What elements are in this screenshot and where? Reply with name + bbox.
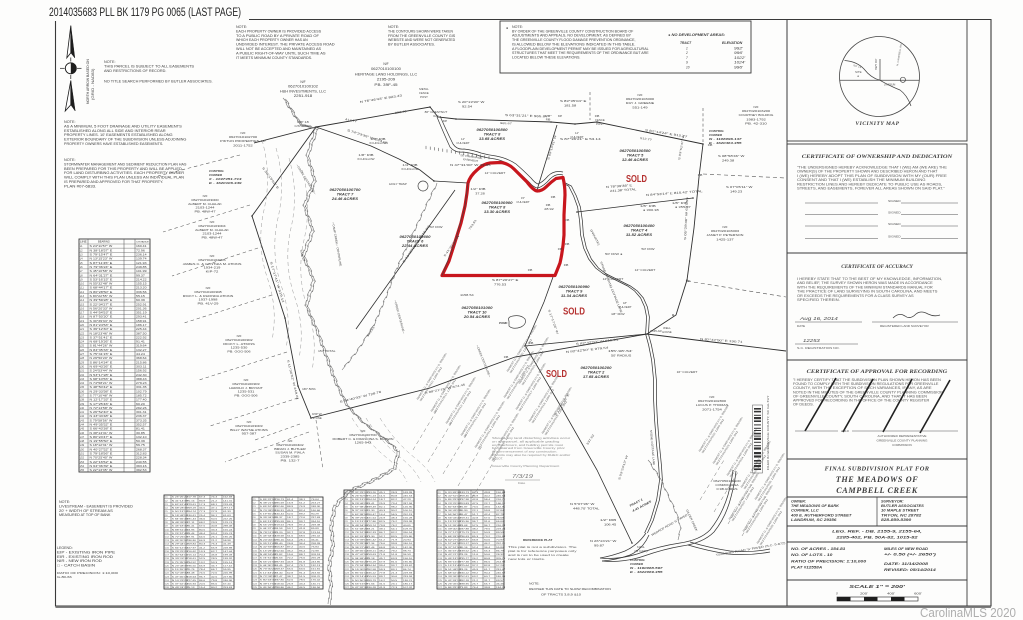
svg-text:89.18: 89.18: [367, 558, 376, 560]
svg-text:KIP: KIP: [558, 114, 563, 118]
svg-text:∼CREEK CENTERLINE∼: ∼CREEK CENTERLINE∼: [475, 344, 492, 379]
svg-text:RIB: RIB: [504, 355, 509, 359]
svg-text:THE CONTOURS SHOWN WERE TAKEN: THE CONTOURS SHOWN WERE TAKEN: [388, 29, 454, 33]
svg-text:N 19°55'50" E: N 19°55'50" E: [90, 440, 113, 443]
svg-text:L29: L29: [80, 361, 85, 364]
svg-text:147.44: 147.44: [223, 551, 233, 553]
svg-text:DATE: DATE: [797, 324, 805, 328]
svg-text:L28: L28: [80, 357, 85, 360]
svg-text:S 37°51'41" E: S 37°51'41" E: [90, 336, 113, 339]
svg-text:IS PREPARED AND APPROVED FOR T: IS PREPARED AND APPROVED FOR THAT PROPER…: [64, 180, 164, 184]
svg-text:190.26: 190.26: [223, 536, 233, 538]
svg-text:S 26°52'40" E: S 26°52'40" E: [90, 411, 113, 414]
svg-text:180.95: 180.95: [496, 576, 506, 578]
svg-text:127.97: 127.97: [187, 547, 197, 549]
svg-text:HOLY TRAP: HOLY TRAP: [389, 182, 407, 186]
svg-text:209.37: 209.37: [460, 539, 470, 541]
svg-text:245.22: 245.22: [367, 572, 377, 574]
svg-text:67.47: 67.47: [275, 576, 284, 578]
svg-text:155.24: 155.24: [223, 529, 233, 531]
svg-text:S 22°34'27" E: S 22°34'27" E: [90, 303, 113, 306]
svg-text:0.98 ACRES: 0.98 ACRES: [717, 487, 738, 491]
svg-text:THE MEADOWS OF: THE MEADOWS OF: [836, 475, 919, 484]
svg-text:236.14: 236.14: [136, 254, 147, 257]
svg-text:20' + WIDTH OF STREAM AS: 20' + WIDTH OF STREAM AS: [59, 509, 113, 513]
svg-text:CORNER, LLC: CORNER, LLC: [791, 509, 819, 513]
svg-text:50′ R/W ●: 50′ R/W ●: [605, 252, 623, 256]
svg-text:159.74: 159.74: [367, 525, 377, 527]
svg-text:210.23: 210.23: [496, 525, 506, 527]
svg-text:271.23: 271.23: [367, 495, 377, 497]
svg-text:L43: L43: [80, 419, 85, 422]
svg-text:RIB: RIB: [595, 114, 600, 118]
svg-text:186.17: 186.17: [136, 324, 147, 327]
svg-text:222.92: 222.92: [136, 336, 147, 339]
svg-text:L12: L12: [80, 291, 85, 294]
svg-text:209.84: 209.84: [187, 544, 197, 546]
svg-text:LIVESTREAM - EASEMENT IS PROVI: LIVESTREAM - EASEMENT IS PROVIDED: [59, 504, 134, 508]
svg-text:279.23: 279.23: [136, 382, 147, 385]
svg-text:140.44: 140.44: [275, 514, 285, 516]
svg-text:246.80: 246.80: [187, 540, 197, 542]
svg-text:177.40: 177.40: [136, 399, 147, 402]
svg-text:260.54: 260.54: [403, 532, 413, 534]
svg-text:245.53: 245.53: [403, 495, 413, 497]
svg-text:18" R/W: 18" R/W: [611, 312, 625, 316]
svg-text:L1: L1: [80, 245, 83, 248]
svg-text:N 53°17'28" E: N 53°17'28" E: [90, 374, 113, 377]
svg-text:OF TRACTS 3,8,9 &10: OF TRACTS 3,8,9 &10: [541, 593, 581, 597]
svg-text:E - 1622069.455: E - 1622069.455: [630, 570, 663, 574]
svg-text:288.86: 288.86: [275, 587, 285, 589]
svg-text:L27: L27: [80, 353, 85, 356]
svg-text:L40: L40: [80, 407, 85, 410]
svg-text:10: 10: [686, 65, 690, 69]
svg-text:24.46 ACRES: 24.46 ACRES: [331, 197, 359, 201]
svg-text:181.43: 181.43: [187, 518, 197, 520]
svg-text:EIR - EXISTING IRON ROD: EIR - EXISTING IRON ROD: [57, 555, 114, 559]
svg-text:S 77°10'48" W: S 77°10'48" W: [90, 394, 114, 397]
svg-text:2251-918: 2251-918: [294, 94, 313, 98]
svg-text:N 87°50'20" E: N 87°50'20" E: [90, 316, 113, 319]
svg-text:753.81: 753.81: [468, 218, 478, 230]
svg-text:236.37: 236.37: [136, 415, 147, 418]
svg-text:71.66: 71.66: [367, 583, 376, 585]
svg-text:WILL COMPLY WITH THIS PLAN UNL: WILL COMPLY WITH THIS PLAN UNLESS AN IND…: [64, 176, 185, 180]
svg-text:ROBERT G. & GWENDOLYN S. BROWN: ROBERT G. & GWENDOLYN S. BROWN: [517, 336, 549, 385]
svg-text:196.50: 196.50: [187, 565, 197, 567]
svg-text:NOTE:: NOTE:: [59, 500, 70, 504]
svg-text:50′ RADIUS: 50′ RADIUS: [611, 354, 631, 358]
svg-text:255.29: 255.29: [311, 558, 321, 560]
svg-text:1/8": 1/8": [544, 114, 552, 118]
svg-text:141.31: 141.31: [223, 500, 233, 502]
svg-text:IN HOLLOW: IN HOLLOW: [358, 157, 376, 161]
svg-text:156.92: 156.92: [136, 370, 147, 373]
svg-text:216.73: 216.73: [275, 499, 285, 501]
svg-text:NOTE:: NOTE:: [64, 158, 76, 162]
svg-text:78.69: 78.69: [496, 517, 505, 519]
svg-text:L24: L24: [80, 341, 85, 344]
svg-text:237.80: 237.80: [275, 580, 285, 582]
svg-text:90.90: 90.90: [460, 510, 469, 512]
svg-text:270.29: 270.29: [367, 561, 377, 563]
svg-text:S 87°20′27" E: S 87°20′27" E: [492, 278, 518, 282]
svg-text:H&H INVESTMENTS, LLC: H&H INVESTMENTS, LLC: [280, 89, 327, 93]
svg-text:N 5°07′36" W: N 5°07′36" W: [570, 502, 595, 506]
svg-text:L16: L16: [80, 307, 85, 310]
svg-text:965.67: 965.67: [500, 121, 513, 125]
svg-text:THIS PARCEL IS SUBJECT TO ALL: THIS PARCEL IS SUBJECT TO ALL EASEMENTS: [104, 65, 195, 69]
svg-text:● 300.38: ● 300.38: [643, 208, 659, 212]
svg-text:28.32: 28.32: [496, 554, 505, 556]
svg-text:Aug 16, 2014: Aug 16, 2014: [799, 316, 839, 321]
svg-text:S 03°51′47" W: S 03°51′47" W: [677, 134, 685, 160]
svg-text:L13: L13: [80, 295, 85, 298]
svg-text:COMMISSION: COMMISSION: [892, 443, 912, 447]
svg-text:LANDRUM: LANDRUM: [884, 84, 895, 87]
svg-text:C/S CREEK: C/S CREEK: [295, 124, 312, 128]
svg-text:★: ★: [857, 74, 860, 78]
svg-text:NO TITLE SEARCH PERFORMED BY B: NO TITLE SEARCH PERFORMED BY BUTLER ASSO…: [104, 80, 213, 84]
svg-text:160.66: 160.66: [311, 510, 321, 512]
svg-text:STONE COTTAGE LANE: STONE COTTAGE LANE: [649, 430, 656, 466]
svg-text:149.23: 149.23: [730, 190, 743, 194]
svg-text:N 29°33'58" E: N 29°33'58" E: [90, 390, 113, 393]
svg-text:(GRID - NAD83): (GRID - NAD83): [91, 69, 95, 100]
svg-text:ESTABLISHED ALONG ALL SIDE AND: ESTABLISHED ALONG ALL SIDE AND INTERIOR …: [64, 129, 166, 133]
svg-text:227.80: 227.80: [223, 576, 233, 578]
svg-text:POPLAR: POPLAR: [650, 329, 661, 333]
svg-text:OWNER:: OWNER:: [791, 500, 807, 504]
svg-text:258.99: 258.99: [311, 543, 321, 545]
svg-text:N 64°36'39" E: N 64°36'39" E: [90, 465, 113, 468]
svg-text:287.93: 287.93: [275, 561, 285, 563]
svg-text:117.42: 117.42: [223, 565, 233, 567]
svg-text:61.30: 61.30: [367, 510, 376, 512]
svg-text:S 17°17′26" W: S 17°17′26" W: [547, 309, 560, 335]
svg-text:L52: L52: [80, 457, 85, 460]
svg-text:UNDIVIDED INTEREST. THE PRIVA: UNDIVIDED INTEREST. THE PRIVATE ACCESS R…: [236, 43, 335, 47]
svg-text:0627050100200: 0627050100200: [581, 366, 612, 370]
svg-text:203.83: 203.83: [460, 503, 470, 505]
svg-text:240.28: 240.28: [367, 587, 377, 589]
svg-text:NOTE:: NOTE:: [529, 582, 540, 586]
svg-text:387.50: 387.50: [136, 332, 147, 335]
svg-text:70.97: 70.97: [496, 539, 505, 541]
svg-text:55.80: 55.80: [496, 547, 505, 549]
svg-text:N 64°31'27" E: N 64°31'27" E: [90, 274, 113, 277]
svg-text:92.54: 92.54: [462, 105, 473, 109]
svg-text:S 08°58′46" W: S 08°58′46" W: [718, 154, 745, 158]
svg-text:187.50%: 187.50%: [302, 387, 316, 391]
svg-text:N 56°20'33" W: N 56°20'33" W: [90, 307, 114, 310]
svg-text:L3: L3: [80, 254, 83, 257]
svg-text:∼CREEK CENTERLINE∼: ∼CREEK CENTERLINE∼: [393, 299, 406, 335]
svg-text:SURVEYOR:: SURVEYOR:: [881, 500, 905, 504]
svg-text:BY BUTLER ASSOCIATES.: BY BUTLER ASSOCIATES.: [388, 43, 435, 47]
svg-text:PROPERTY OWNERS HAVE ESTABLISH: PROPERTY OWNERS HAVE ESTABLISHED EASEMEN…: [64, 142, 163, 146]
svg-text:1425-137: 1425-137: [716, 237, 734, 241]
svg-text:L17: L17: [80, 312, 85, 315]
svg-text:7/3/19: 7/3/19: [512, 474, 533, 480]
svg-text:158.91: 158.91: [136, 320, 147, 323]
svg-text:81.41: 81.41: [136, 428, 146, 431]
svg-text:WEBSITE AND WERE NOT GENERATED: WEBSITE AND WERE NOT GENERATED: [388, 38, 456, 42]
svg-text:373.35: 373.35: [136, 419, 147, 422]
svg-text:RIB: RIB: [698, 173, 703, 177]
svg-text:17.65 ACRES: 17.65 ACRES: [583, 375, 610, 379]
svg-text:S 81°44'26" W: S 81°44'26" W: [90, 345, 114, 348]
svg-text:RIB: RIB: [528, 268, 533, 272]
svg-text:L34: L34: [80, 382, 85, 385]
svg-text:0627010100102: 0627010100102: [288, 85, 318, 89]
svg-text:SIGNED: SIGNED: [888, 211, 901, 215]
svg-text:0627050101000: 0627050101000: [462, 306, 493, 310]
svg-text:THE MEADOWS OF BARK: THE MEADOWS OF BARK: [791, 504, 839, 508]
svg-text:● 355.07: ● 355.07: [675, 205, 691, 209]
svg-text:301.31: 301.31: [136, 411, 147, 414]
svg-text:IT MEETS MINIMUM COUNTY STANDA: IT MEETS MINIMUM COUNTY STANDARDS.: [236, 56, 312, 60]
svg-text:2: 2: [685, 51, 688, 55]
svg-text:S 68°44'17" E: S 68°44'17" E: [90, 287, 113, 290]
svg-text:262.18: 262.18: [460, 580, 470, 582]
svg-text:169.99: 169.99: [403, 492, 413, 494]
svg-text:∼CAMP CREEK∼ CENTERLINE: ∼CAMP CREEK∼ CENTERLINE: [331, 221, 343, 266]
svg-text:105.87: 105.87: [275, 547, 285, 549]
svg-text:TRACT 9: TRACT 9: [566, 290, 583, 294]
svg-text:12253: 12253: [803, 338, 820, 344]
svg-text:encroachment, and building per: encroachment, and building permits must: [492, 443, 563, 447]
svg-text:CERTIFICATE OF ACCURACY: CERTIFICATE OF ACCURACY: [841, 264, 913, 270]
svg-text:N 79°36'24" E: N 79°36'24" E: [90, 266, 113, 269]
svg-text:264.10: 264.10: [311, 521, 321, 523]
svg-text:87.79: 87.79: [496, 514, 505, 516]
svg-text:225.64: 225.64: [460, 565, 470, 567]
svg-text:996': 996': [734, 65, 744, 69]
svg-text:STREETS, AND EASEMENTS, FOREVE: STREETS, AND EASEMENTS, FOREVER ALL AREA…: [797, 187, 946, 191]
svg-text:14": 14": [575, 131, 579, 135]
svg-text:412.77: 412.77: [345, 117, 358, 123]
svg-text:L15: L15: [80, 303, 85, 306]
svg-text:127.65: 127.65: [187, 580, 197, 582]
svg-text:2010: 2010: [841, 429, 849, 433]
svg-text:PB. 42-310: PB. 42-310: [745, 121, 767, 125]
svg-text:213.20: 213.20: [136, 287, 147, 290]
svg-text:N 12°17'33" E: N 12°17'33" E: [90, 399, 113, 402]
svg-text:S 80°24'47" E: S 80°24'47" E: [90, 436, 113, 439]
svg-text:0627050100900: 0627050100900: [482, 201, 513, 205]
svg-text:252.21: 252.21: [496, 543, 506, 545]
svg-text:LOCATED BELOW THESE ELEVATIONS: LOCATED BELOW THESE ELEVATIONS.: [512, 55, 581, 59]
svg-text:132.91: 132.91: [496, 506, 506, 508]
svg-text:N 76°46′43" E 823.43: N 76°46′43" E 823.43: [360, 93, 403, 104]
svg-text:252.91: 252.91: [136, 303, 147, 306]
svg-text:140.61: 140.61: [187, 515, 197, 517]
svg-text:S 79°15'47" E: S 79°15'47" E: [90, 254, 113, 257]
svg-text:PB. 48W-47: PB. 48W-47: [195, 210, 216, 214]
svg-text:269.29: 269.29: [187, 508, 197, 510]
svg-text:(R CAP): (R CAP): [634, 549, 647, 553]
svg-text:S 82°42′50" W 915.91: S 82°42′50" W 915.91: [576, 338, 619, 346]
svg-text:66.47: 66.47: [460, 514, 469, 516]
svg-text:237.98: 237.98: [460, 499, 470, 501]
svg-text:296.16: 296.16: [275, 539, 285, 541]
svg-text:40.65: 40.65: [403, 525, 412, 527]
svg-text:NOTE:: NOTE:: [236, 25, 247, 29]
svg-text:L11: L11: [80, 287, 85, 290]
svg-text:L50: L50: [80, 448, 85, 451]
svg-text:285.69: 285.69: [275, 502, 285, 504]
svg-text:IN HOLLOW: IN HOLLOW: [370, 141, 388, 145]
svg-text:75.84: 75.84: [311, 547, 320, 549]
svg-text:S 18°12'31" W: S 18°12'31" W: [90, 444, 114, 447]
svg-text:136.21: 136.21: [403, 580, 413, 582]
svg-text:56.75: 56.75: [136, 444, 146, 447]
svg-text:CULVERT: CULVERT: [456, 141, 470, 145]
svg-text:69.57: 69.57: [496, 580, 505, 582]
svg-text:RIB: RIB: [565, 218, 570, 222]
svg-text:WELL: WELL: [663, 326, 671, 330]
svg-text:67.40: 67.40: [223, 583, 232, 585]
svg-text:S 44°54'53" E: S 44°54'53" E: [90, 312, 113, 315]
svg-text:S 66°43'38" E: S 66°43'38" E: [90, 428, 113, 431]
svg-text:LEGEND:: LEGEND:: [57, 546, 73, 550]
svg-text:254.92: 254.92: [496, 561, 506, 563]
svg-text:N 29°50'20" W: N 29°50'20" W: [90, 357, 114, 360]
svg-text:RIP 18: RIP 18: [297, 120, 309, 124]
svg-text:98.40: 98.40: [275, 543, 284, 545]
svg-text:34.59: 34.59: [275, 528, 284, 530]
svg-text:209.18: 209.18: [311, 554, 321, 556]
svg-text:RIB: RIB: [708, 143, 713, 147]
svg-text:157 TOTAL: 157 TOTAL: [318, 349, 336, 353]
svg-text:N 84°53′14" E 815.42′ TOTAL: N 84°53′14" E 815.42′ TOTAL: [646, 189, 704, 197]
svg-text:229.93: 229.93: [403, 572, 413, 574]
svg-text:252.19: 252.19: [403, 514, 413, 516]
svg-text:98.37: 98.37: [275, 517, 284, 519]
svg-text:S 22°13'35" W: S 22°13'35" W: [90, 469, 114, 472]
svg-text:155.14: 155.14: [223, 562, 233, 564]
svg-text:S 24°53'44" W: S 24°53'44" W: [90, 370, 114, 373]
svg-text:109.70: 109.70: [403, 528, 413, 530]
svg-text:243.85: 243.85: [311, 561, 321, 563]
svg-text:L32: L32: [80, 374, 85, 377]
svg-text:331.35: 331.35: [136, 386, 147, 389]
svg-text:1/8" RIB: 1/8" RIB: [358, 153, 373, 157]
svg-text:Permits may also be required b: Permits may also be required by DHEC and…: [492, 453, 570, 457]
svg-text:MEASURED AT TOP OF BANK: MEASURED AT TOP OF BANK: [59, 513, 111, 517]
svg-text:L10: L10: [80, 283, 85, 286]
svg-text:957-387: 957-387: [242, 432, 257, 436]
svg-text:0627050100700: 0627050100700: [330, 188, 361, 192]
svg-text:N. CAMPBELL RD: N. CAMPBELL RD: [896, 43, 903, 66]
svg-text:2014035683 PLL BK 1179 PG 006: 2014035683 PLL BK 1179 PG 0065 (LAST PAG…: [49, 7, 241, 19]
svg-text:353.81: 353.81: [366, 325, 376, 337]
svg-text:336.56: 336.56: [136, 291, 147, 294]
svg-text:1: 1: [686, 47, 688, 51]
svg-text:MILES OF NEW ROAD: MILES OF NEW ROAD: [884, 547, 928, 551]
svg-text:297.17: 297.17: [223, 508, 233, 510]
svg-text:RIB: RIB: [546, 118, 551, 122]
svg-text:448.70′ TOTAL: 448.70′ TOTAL: [573, 507, 600, 511]
svg-text:WHICH EACH PROPERTY OWNER HAS: WHICH EACH PROPERTY OWNER HAS AN: [236, 38, 308, 42]
svg-text:91.41: 91.41: [136, 341, 146, 344]
svg-text:AND RESTRICTIONS OF RECORD.: AND RESTRICTIONS OF RECORD.: [104, 69, 166, 73]
svg-text:L4: L4: [80, 258, 83, 261]
svg-text:246.54: 246.54: [496, 495, 506, 497]
svg-text:181.58: 181.58: [564, 104, 577, 108]
svg-text:NAIL: NAIL: [637, 545, 645, 549]
svg-text:41.49: 41.49: [223, 544, 232, 546]
svg-text:14" CULVERT: 14" CULVERT: [485, 171, 506, 175]
svg-text:S 86°14'34" E: S 86°14'34" E: [90, 361, 113, 364]
svg-text:106.45: 106.45: [604, 523, 617, 527]
svg-text:368.64: 368.64: [136, 357, 147, 360]
svg-text:2011-1752: 2011-1752: [233, 143, 253, 147]
svg-text:IN HOLLOW: IN HOLLOW: [402, 167, 420, 171]
svg-text:226.99: 226.99: [223, 573, 233, 575]
svg-text:162.69: 162.69: [223, 497, 233, 499]
svg-text:STORMWATER MANAGEMENT AND SEDI: STORMWATER MANAGEMENT AND SEDIMENT REDUC…: [64, 162, 187, 166]
svg-text:GREENVILLE COUNTY PLANNING: GREENVILLE COUNTY PLANNING: [877, 439, 928, 443]
svg-text:185.72: 185.72: [136, 394, 147, 397]
svg-text:187.88: 187.88: [460, 528, 470, 530]
svg-text:S 03°23′13" W: S 03°23′13" W: [617, 454, 629, 480]
svg-text:NIR - NEW IRON ROD: NIR - NEW IRON ROD: [57, 559, 103, 563]
svg-text:RIP W: RIP W: [312, 412, 322, 416]
svg-text:L42: L42: [80, 415, 85, 418]
svg-text:PB. 48W-47: PB. 48W-47: [202, 236, 223, 240]
svg-text:94.59: 94.59: [403, 554, 412, 556]
svg-text:37.84: 37.84: [496, 510, 505, 512]
svg-text:S 83°22'55" W: S 83°22'55" W: [90, 295, 114, 298]
svg-text:SIGNED: SIGNED: [888, 235, 901, 239]
svg-text:47.34: 47.34: [367, 543, 376, 545]
svg-text:229.24: 229.24: [496, 528, 506, 530]
svg-text:TRYON, NC 28782: TRYON, NC 28782: [881, 513, 921, 517]
svg-text:20.94: 20.94: [403, 539, 412, 541]
svg-text:RIB: RIB: [565, 242, 570, 246]
svg-text:176.42: 176.42: [311, 580, 321, 582]
svg-text:161.81: 161.81: [311, 569, 321, 571]
svg-text:METAL: METAL: [419, 87, 429, 91]
svg-text:PLAN #07-6833.: PLAN #07-6833.: [64, 184, 96, 188]
svg-text:NORTH ARROW BASED ON: NORTH ARROW BASED ON: [86, 58, 90, 104]
svg-text:S 30°39'34" W: S 30°39'34" W: [90, 320, 114, 323]
svg-text:205.75: 205.75: [496, 558, 506, 560]
svg-text:293.26: 293.26: [367, 492, 377, 494]
svg-text:AS A MINIMUM, 5 FOOT DRAINAGE: AS A MINIMUM, 5 FOOT DRAINAGE AND UTILIT…: [64, 124, 183, 128]
svg-text:OF DEEDS.: OF DEEDS.: [793, 403, 814, 407]
svg-text:33.21: 33.21: [367, 528, 376, 530]
svg-text:16" CULVERT: 16" CULVERT: [677, 370, 698, 374]
svg-text:L33: L33: [80, 378, 85, 381]
svg-text:1022': 1022': [734, 56, 746, 60]
svg-text:L5: L5: [80, 262, 83, 265]
svg-text:118.50: 118.50: [275, 583, 285, 585]
svg-text:2195-209: 2195-209: [377, 78, 396, 82]
svg-text:102.79: 102.79: [136, 390, 147, 393]
svg-text:249.38: 249.38: [722, 159, 735, 163]
svg-text:400': 400': [887, 592, 895, 596]
svg-text:0627050100500: 0627050100500: [620, 149, 651, 153]
svg-text:28.92: 28.92: [544, 207, 554, 211]
svg-text:CULVERT: CULVERT: [570, 135, 584, 139]
svg-text:72.96: 72.96: [136, 249, 146, 252]
svg-text:225.44: 225.44: [136, 328, 147, 331]
svg-text:S 87°11'45" E: S 87°11'45" E: [90, 262, 113, 265]
